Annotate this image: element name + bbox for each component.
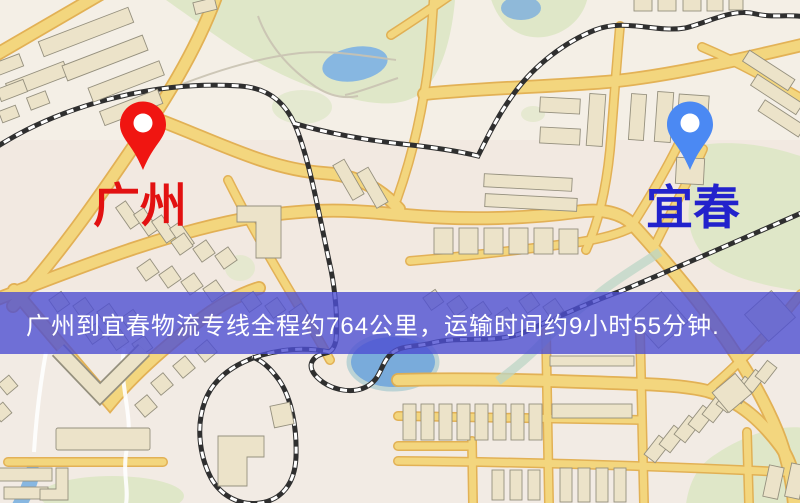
origin-city-label: 广州 bbox=[93, 181, 187, 233]
map-canvas: 广州 宜春 bbox=[0, 0, 800, 503]
route-info-text: 广州到宜春物流专线全程约764公里，运输时间约9小时55分钟. bbox=[26, 306, 720, 341]
origin-pin-hole bbox=[134, 114, 153, 133]
destination-city-label: 宜春 bbox=[646, 183, 740, 235]
destination-pin-hole bbox=[681, 114, 700, 133]
route-info-banner: 广州到宜春物流专线全程约764公里，运输时间约9小时55分钟. bbox=[0, 292, 800, 354]
map-viewport[interactable]: 广州 宜春 广州到宜春物流专线全程约764公里，运输时间约9小时55分钟. bbox=[0, 0, 800, 503]
